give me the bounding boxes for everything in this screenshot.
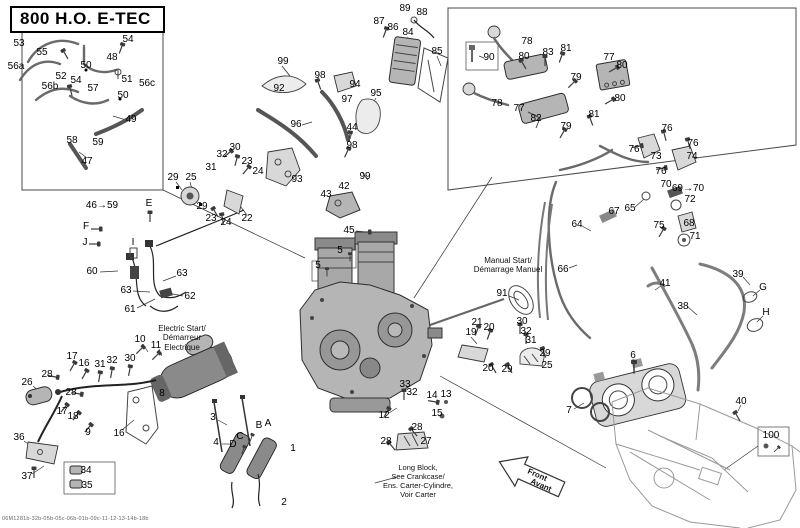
callout-48: 48 <box>106 53 117 63</box>
callout-56c: 56c <box>139 79 155 89</box>
callout-39: 39 <box>732 270 743 280</box>
callout-2: 2 <box>281 498 287 508</box>
callout-42: 42 <box>338 182 349 192</box>
callout-A: A <box>265 419 272 429</box>
callout-H: H <box>762 308 769 318</box>
callout-30: 30 <box>124 354 135 364</box>
callout-J: J <box>83 238 88 248</box>
callout-29: 29 <box>167 173 178 183</box>
callout-13: 13 <box>440 390 451 400</box>
callout-81: 81 <box>560 44 571 54</box>
callout-28: 28 <box>65 388 76 398</box>
callout-16: 16 <box>113 429 124 439</box>
callout-32: 32 <box>106 356 117 366</box>
callout-54: 54 <box>70 76 81 86</box>
callout-69-70: 69→70 <box>672 184 704 194</box>
electric-start-line2: Démarreur <box>158 333 206 342</box>
callout-57: 57 <box>87 84 98 94</box>
callout-63: 63 <box>120 286 131 296</box>
callout-27: 27 <box>420 437 431 447</box>
right-hoses-drawing <box>538 134 765 390</box>
spark-plug-glyph <box>469 45 475 50</box>
engine-mount-left-drawing <box>176 186 243 214</box>
callout-19: 19 <box>465 328 476 338</box>
callout-94: 94 <box>349 80 360 90</box>
callout-81: 81 <box>588 110 599 120</box>
callout-59: 59 <box>92 138 103 148</box>
callout-86: 86 <box>387 23 398 33</box>
callout-71: 71 <box>689 232 700 242</box>
callout-E: E <box>146 199 153 209</box>
callout-83: 83 <box>542 48 553 58</box>
callout-85: 85 <box>431 47 442 57</box>
callout-95: 95 <box>370 89 381 99</box>
callout-17: 17 <box>66 352 77 362</box>
callout-72: 72 <box>684 195 695 205</box>
manual-start-line1: Manual Start/ <box>474 256 542 265</box>
callout-D: D <box>229 440 236 450</box>
callout-28: 28 <box>380 437 391 447</box>
callout-56b: 56b <box>42 82 59 92</box>
callout-70: 70 <box>660 180 671 190</box>
callout-64: 64 <box>571 220 582 230</box>
callout-84: 84 <box>402 28 413 38</box>
manual-start-note: Manual Start/ Démarrage Manuel <box>474 256 542 275</box>
long-block-note: Long Block, See Crankcase/ Ens. Carter-C… <box>383 464 453 499</box>
callout-99: 99 <box>277 57 288 67</box>
callout-60: 60 <box>86 267 97 277</box>
callout-29: 29 <box>196 202 207 212</box>
callout-98: 98 <box>314 71 325 81</box>
electric-start-line3: Electrique <box>158 343 206 352</box>
callout-32: 32 <box>216 150 227 160</box>
callout-10: 10 <box>134 335 145 345</box>
callout-74: 74 <box>686 152 697 162</box>
long-block-line4: Voir Carter <box>383 491 453 500</box>
callout-76: 76 <box>655 167 666 177</box>
callout-62: 62 <box>184 292 195 302</box>
callout-31: 31 <box>205 163 216 173</box>
coil-pack-drawing <box>212 395 278 508</box>
callout-79: 79 <box>570 73 581 83</box>
callout-6: 6 <box>630 351 636 361</box>
callout-35: 35 <box>81 481 92 491</box>
solenoid-connector <box>130 266 139 279</box>
callout-79: 79 <box>560 122 571 132</box>
callout-66: 66 <box>557 265 568 275</box>
callout-4: 4 <box>213 438 219 448</box>
callout-38: 38 <box>677 302 688 312</box>
callout-88: 88 <box>416 8 427 18</box>
callout-68: 68 <box>683 219 694 229</box>
callout-25: 25 <box>185 173 196 183</box>
callout-20: 20 <box>482 364 493 374</box>
manual-start-line2: Démarrage Manuel <box>474 265 542 274</box>
callout-89: 89 <box>399 4 410 14</box>
callout-36: 36 <box>13 433 24 443</box>
callout-87: 87 <box>373 17 384 27</box>
callout-53: 53 <box>13 39 24 49</box>
callout-3: 3 <box>210 413 216 423</box>
callout-23: 23 <box>241 157 252 167</box>
electric-start-line1: Electric Start/ <box>158 324 206 333</box>
callout-15: 15 <box>431 409 442 419</box>
callout-5: 5 <box>337 246 343 256</box>
callout-77: 77 <box>603 53 614 63</box>
callout-96: 96 <box>290 120 301 130</box>
callout-24: 24 <box>252 167 263 177</box>
callout-82: 82 <box>530 114 541 124</box>
callout-51: 51 <box>121 75 132 85</box>
callout-12: 12 <box>378 411 389 421</box>
callout-98: 98 <box>346 141 357 151</box>
callout-44: 44 <box>346 123 357 133</box>
callout-9: 9 <box>85 428 91 438</box>
callout-28: 28 <box>411 423 422 433</box>
callout-56a: 56a <box>8 62 25 72</box>
callout-76: 76 <box>628 145 639 155</box>
callout-54: 54 <box>122 35 133 45</box>
callout-100: 100 <box>763 431 780 441</box>
callout-18: 18 <box>67 412 78 422</box>
callout-67: 67 <box>608 207 619 217</box>
callout-32: 32 <box>406 388 417 398</box>
callout-31: 31 <box>94 360 105 370</box>
callout-23: 23 <box>205 214 216 224</box>
callout-50: 50 <box>80 61 91 71</box>
callout-92: 92 <box>273 84 284 94</box>
electric-start-note: Electric Start/ Démarreur Electrique <box>158 324 206 352</box>
callout-C: C <box>236 432 243 442</box>
callout-90: 90 <box>483 53 494 63</box>
callout-8: 8 <box>159 389 165 399</box>
callout-11: 11 <box>151 341 161 351</box>
callout-55: 55 <box>36 48 47 58</box>
callout-41: 41 <box>659 279 670 289</box>
callout-28: 28 <box>41 370 52 380</box>
callout-37: 37 <box>21 472 32 482</box>
callout-G: G <box>759 283 767 293</box>
callout-26: 26 <box>21 378 32 388</box>
callout-46-59: 46→59 <box>86 201 118 211</box>
callout-5: 5 <box>315 261 321 271</box>
engine-block-drawing <box>300 232 442 412</box>
callout-40: 40 <box>735 397 746 407</box>
callout-1: 1 <box>290 444 296 454</box>
callout-7: 7 <box>566 406 572 416</box>
callout-31: 31 <box>525 336 536 346</box>
page-title: 800 H.O. E-TEC <box>10 6 165 33</box>
callout-78: 78 <box>491 99 502 109</box>
callout-20: 20 <box>483 323 494 333</box>
callout-76: 76 <box>687 139 698 149</box>
callout-93: 93 <box>291 175 302 185</box>
callout-97: 97 <box>341 95 352 105</box>
callout-78: 78 <box>521 37 532 47</box>
ignition-coils-drawing <box>463 26 630 128</box>
callout-91: 91 <box>496 289 507 299</box>
footer-part-code: 06M1281b-32b-05b-05c-06b-01b-09c-11-12-1… <box>2 516 149 522</box>
callout-77: 77 <box>513 104 524 114</box>
callout-63: 63 <box>176 269 187 279</box>
callout-24: 24 <box>220 218 231 228</box>
callout-80: 80 <box>616 61 627 71</box>
callout-29: 29 <box>501 365 512 375</box>
exploded-view-drawing: Front Avant <box>0 0 800 528</box>
callout-73: 73 <box>650 152 661 162</box>
clamp-glyph <box>572 388 592 408</box>
callout-49: 49 <box>125 115 136 125</box>
callout-80: 80 <box>614 94 625 104</box>
callout-47: 47 <box>81 157 92 167</box>
parts-diagram-page: Front Avant 800 H.O. E-TEC Electric Star… <box>0 0 800 528</box>
callout-17: 17 <box>56 407 67 417</box>
callout-25: 25 <box>541 361 552 371</box>
callout-65: 65 <box>624 204 635 214</box>
callout-61: 61 <box>124 305 135 315</box>
front-direction-arrow: Front Avant <box>493 447 568 504</box>
callout-58: 58 <box>66 136 77 146</box>
callout-16: 16 <box>78 359 89 369</box>
callout-80: 80 <box>518 52 529 62</box>
callout-I: I <box>132 238 135 248</box>
callout-45: 45 <box>343 226 354 236</box>
callout-34: 34 <box>80 466 91 476</box>
callout-F: F <box>83 222 89 232</box>
callout-30: 30 <box>229 143 240 153</box>
callout-75: 75 <box>653 221 664 231</box>
callout-99: 99 <box>359 172 370 182</box>
callout-50: 50 <box>117 91 128 101</box>
callout-22: 22 <box>241 214 252 224</box>
callout-76: 76 <box>661 124 672 134</box>
callout-43: 43 <box>320 190 331 200</box>
callout-14: 14 <box>426 391 437 401</box>
callout-B: B <box>256 421 263 431</box>
callout-29: 29 <box>539 349 550 359</box>
